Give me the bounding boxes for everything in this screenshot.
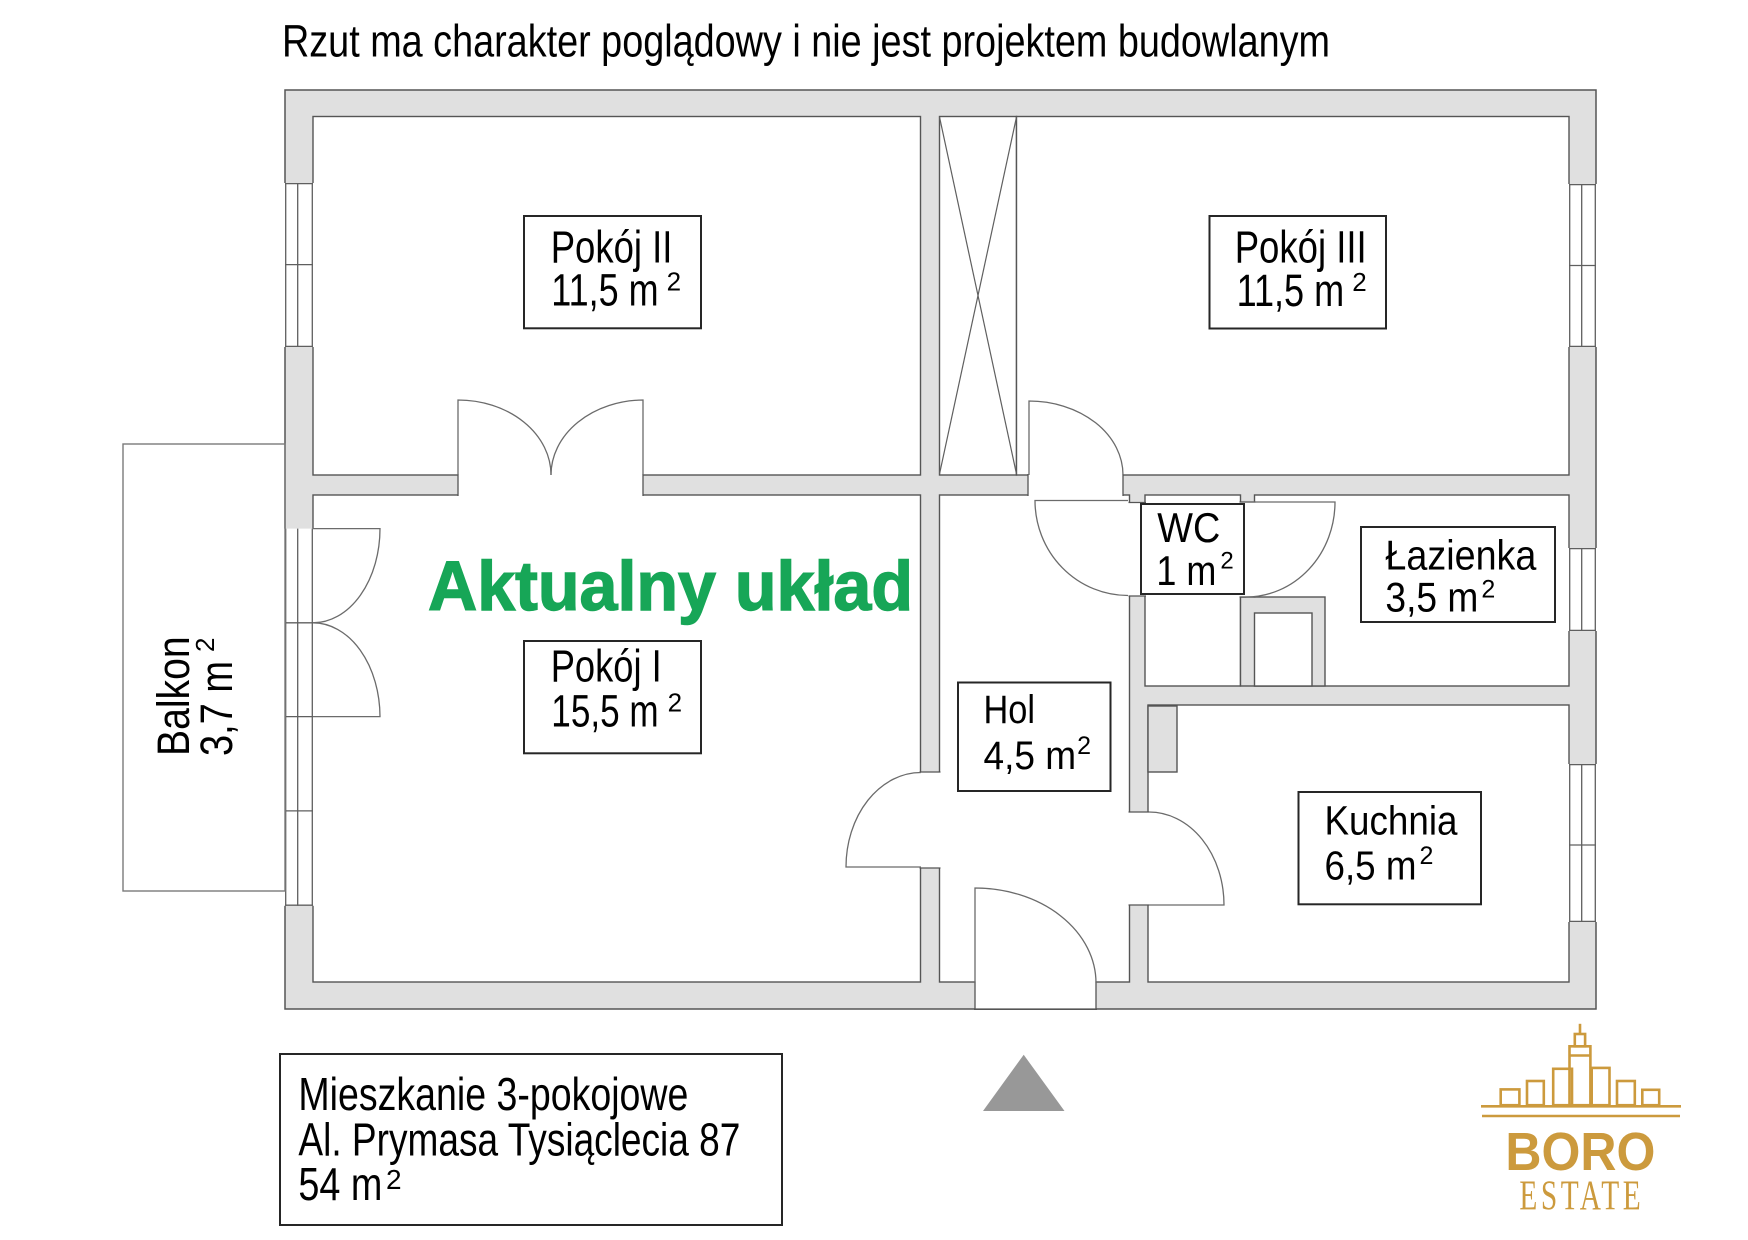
svg-text:4,5 m: 4,5 m: [984, 734, 1077, 778]
svg-text:Aktualny układ: Aktualny układ: [428, 547, 913, 625]
svg-text:3,5 m: 3,5 m: [1385, 574, 1478, 621]
svg-text:2: 2: [1420, 842, 1434, 870]
svg-text:2: 2: [1481, 576, 1495, 604]
svg-text:2: 2: [1220, 548, 1233, 575]
svg-text:Hol: Hol: [984, 688, 1036, 732]
svg-text:Mieszkanie 3-pokojowe: Mieszkanie 3-pokojowe: [298, 1068, 688, 1120]
svg-text:2: 2: [386, 1164, 402, 1195]
svg-text:11,5 m: 11,5 m: [1237, 265, 1345, 316]
svg-text:Kuchnia: Kuchnia: [1325, 798, 1458, 844]
svg-text:11,5 m: 11,5 m: [551, 264, 658, 315]
svg-text:2: 2: [1077, 732, 1091, 760]
svg-text:54 m: 54 m: [298, 1158, 382, 1210]
svg-text:Rzut ma charakter poglądowy i: Rzut ma charakter poglądowy i nie jest p…: [282, 16, 1330, 67]
svg-text:2: 2: [190, 638, 220, 652]
svg-text:WC: WC: [1157, 504, 1220, 551]
svg-text:2: 2: [1352, 267, 1366, 297]
svg-text:Łazienka: Łazienka: [1385, 532, 1537, 579]
svg-text:ESTATE: ESTATE: [1519, 1172, 1644, 1218]
svg-text:2: 2: [667, 266, 681, 296]
svg-text:1 m: 1 m: [1156, 547, 1216, 594]
svg-text:Pokój I: Pokój I: [551, 641, 662, 692]
svg-text:15,5 m: 15,5 m: [551, 685, 658, 736]
svg-text:6,5 m: 6,5 m: [1325, 843, 1417, 889]
svg-text:3,7 m: 3,7 m: [191, 661, 242, 756]
svg-text:2: 2: [668, 687, 682, 717]
